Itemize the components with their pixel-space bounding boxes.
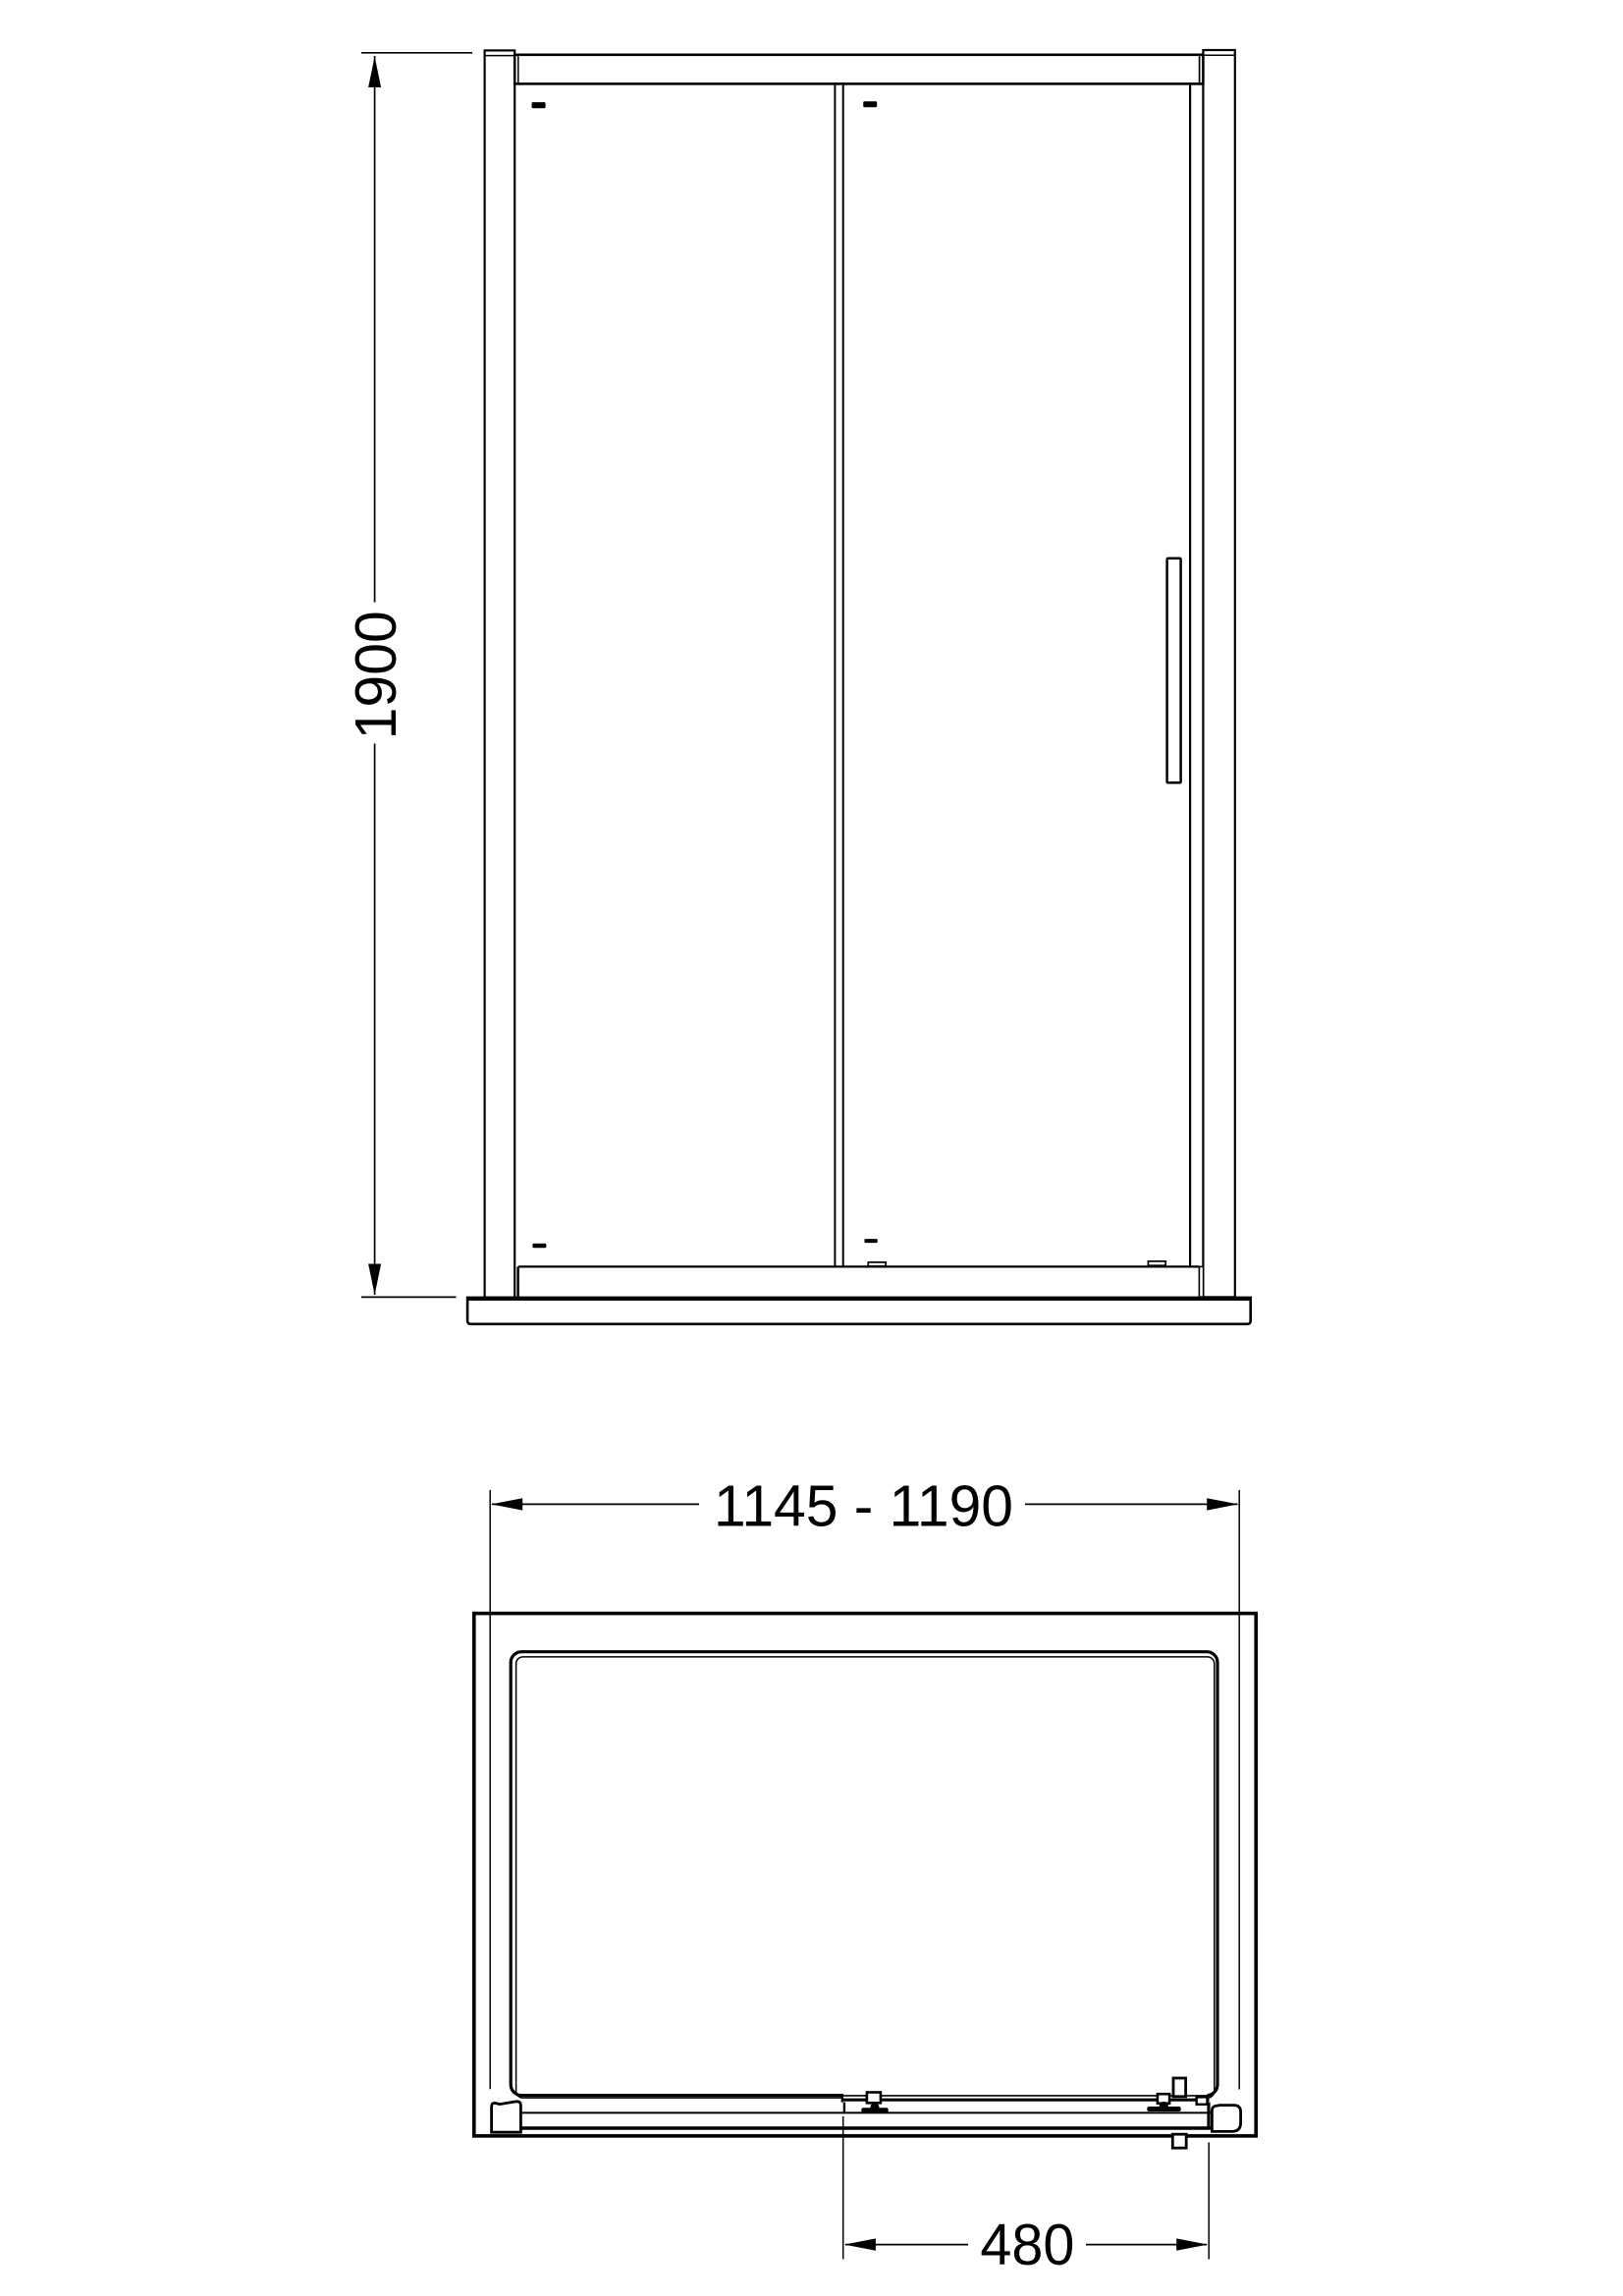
svg-text:480: 480	[980, 2212, 1074, 2277]
svg-text:1145 - 1190: 1145 - 1190	[714, 1473, 1013, 1539]
svg-text:1900: 1900	[344, 611, 408, 739]
